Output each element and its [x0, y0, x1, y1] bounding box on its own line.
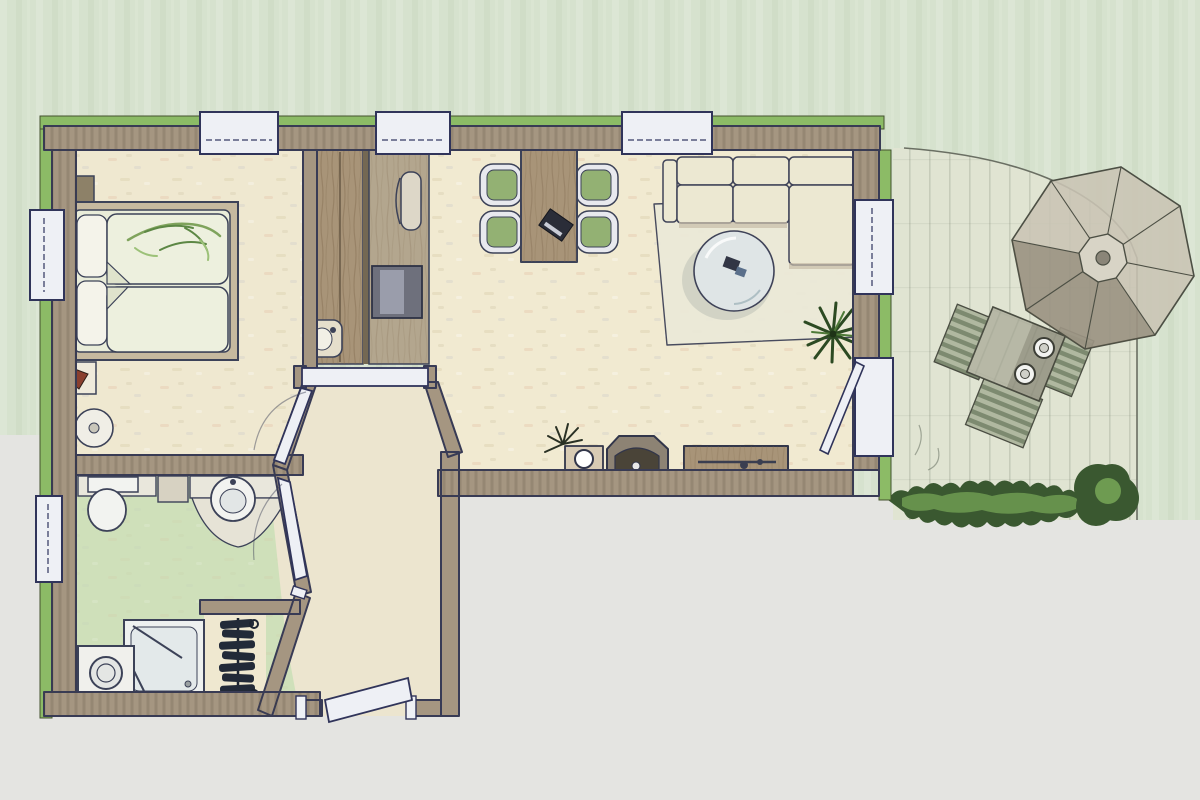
- dining-chair-1: [480, 164, 522, 206]
- pillow-2: [77, 281, 107, 345]
- living-opening-beam: [302, 368, 428, 386]
- floor-plan-screenshot: [0, 0, 1200, 800]
- entry-jamb-left: [296, 696, 306, 719]
- dining-chair-2: [480, 211, 522, 253]
- top-window-1: [200, 112, 278, 154]
- right-window-living: [855, 200, 893, 294]
- left-window-bedroom: [30, 210, 64, 300]
- shower-cabin: [124, 620, 204, 698]
- round-stool: [75, 409, 113, 447]
- kitchenette-strip: [305, 150, 429, 364]
- dining-chair-4: [576, 211, 618, 253]
- cabinet-divider: [363, 150, 369, 364]
- duvet-2: [107, 287, 228, 352]
- pedestal-with-bowl: [565, 446, 603, 472]
- sofa-chaise: [789, 185, 855, 265]
- basin-faucet: [230, 479, 236, 485]
- double-bed: [66, 202, 238, 360]
- pillow-1: [77, 215, 107, 277]
- refrigerator: [372, 266, 422, 318]
- top-window-2: [376, 112, 450, 154]
- stove-fireplace: [607, 436, 668, 472]
- top-window-3: [622, 112, 712, 154]
- washbasin: [211, 477, 255, 521]
- floor-plan-svg: [0, 0, 1200, 800]
- counter-shelf: [158, 476, 188, 502]
- parasol-pole: [1096, 251, 1110, 265]
- dining-set: [480, 150, 618, 262]
- dining-chair-3: [576, 164, 618, 206]
- sofa-armrest: [663, 160, 677, 222]
